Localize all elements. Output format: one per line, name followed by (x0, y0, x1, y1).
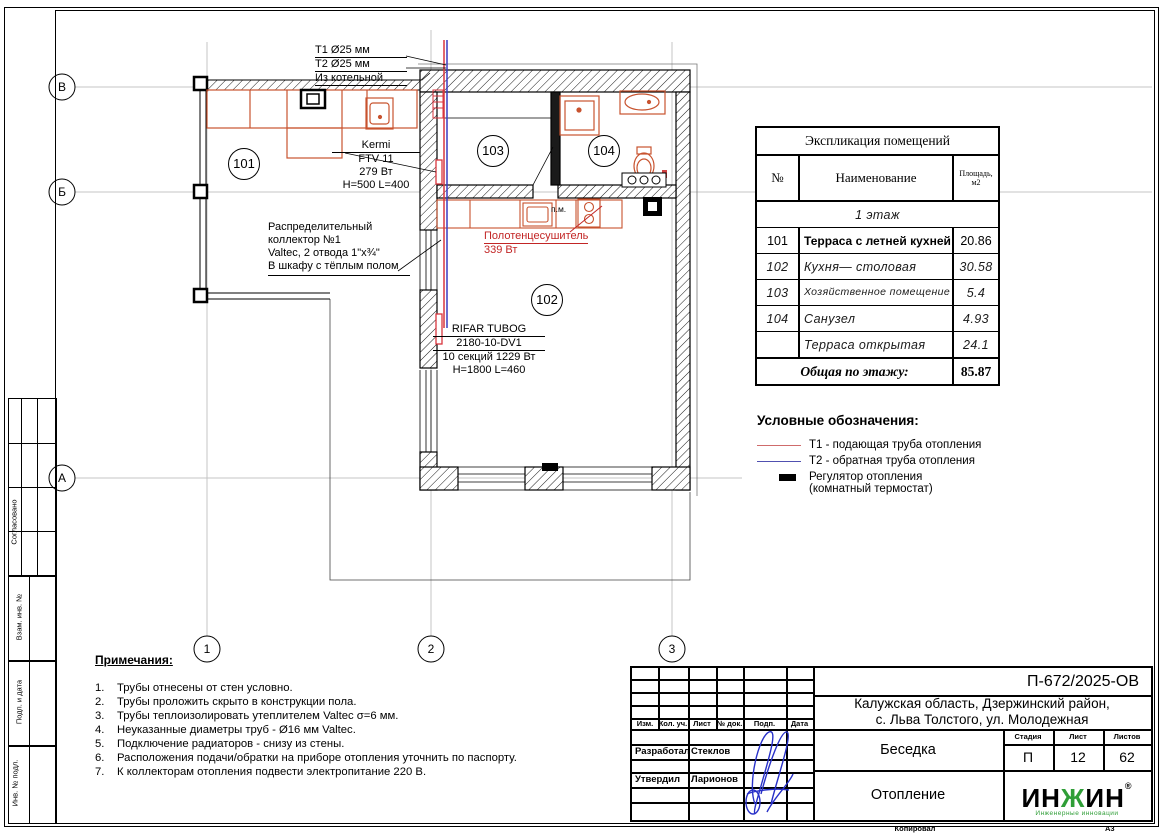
sheets-label: Листов (1103, 729, 1151, 744)
room-101-tag: 101 (228, 148, 260, 180)
return-pipe-label: Т2 Ø25 мм (315, 58, 407, 72)
towel-name: Полотенцесушитель (484, 230, 588, 244)
supply-line-swatch (757, 445, 801, 446)
frame-label-agreed: Согласовано (8, 470, 22, 575)
floor-row: 1 этаж (757, 200, 998, 227)
pipe-labels: Т1 Ø25 мм Т2 Ø25 мм Из котельной (315, 44, 407, 86)
copied-label: Копировал (870, 824, 960, 833)
axis-row-a: А (49, 465, 75, 491)
axis-col-3: 3 (659, 636, 685, 662)
rifar-name: RIFAR TUBOG (433, 323, 545, 337)
developed-label: Разработал (633, 744, 688, 759)
collector-l3: Valtec, 2 отвода 1"х¾" (268, 247, 410, 260)
table-row: 101 Терраса с летней кухней 20.86 (757, 227, 998, 253)
col-no: № (757, 156, 800, 200)
kermi-model: FTV 11 (332, 153, 420, 166)
legend-title: Условные обозначения: (757, 413, 981, 428)
regulator-swatch (779, 474, 796, 481)
collector-l2: коллектор №1 (268, 234, 410, 247)
sheet-value: 12 (1053, 744, 1103, 770)
col-list: Лист (688, 718, 716, 729)
kermi-size: H=500 L=400 (332, 179, 420, 192)
rifar-sections: 10 секций 1229 Вт (433, 351, 545, 364)
frame-label-podp: Подп. и дата (13, 660, 27, 745)
object-name: Беседка (813, 729, 1003, 770)
legend: Условные обозначения: Т1 - подающая труб… (757, 413, 981, 495)
col-name: Наименование (800, 156, 954, 200)
room-102-tag: 102 (531, 284, 563, 316)
table-row: Терраса открытая 24.1 (757, 331, 998, 357)
washing-machine-label: п.м. (551, 204, 566, 214)
sheets-value: 62 (1103, 744, 1151, 770)
collector-l1: Распределительный (268, 221, 410, 234)
rifar-radiator-label: RIFAR TUBOG 2180-10-DV1 10 секций 1229 В… (433, 323, 545, 377)
note-item: 2.Трубы проложить скрыто в конструкции п… (95, 696, 517, 708)
notes-title: Примечания: (95, 653, 517, 667)
note-item: 3.Трубы теплоизолировать утеплителем Val… (95, 710, 517, 722)
kermi-name: Kermi (332, 139, 420, 153)
col-izm: Изм. (632, 718, 658, 729)
rifar-model: 2180-10-DV1 (433, 337, 545, 351)
towel-dryer-label: Полотенцесушитель 339 Вт (484, 230, 588, 257)
supply-pipe-label: Т1 Ø25 мм (315, 44, 407, 58)
note-item: 1.Трубы отнесены от стен условно. (95, 682, 517, 694)
floor-label: 1 этаж (757, 202, 998, 227)
sheet-label: Лист (1053, 729, 1103, 744)
logo-tree-glyph: Ж (1061, 783, 1086, 813)
stage-value: П (1003, 744, 1053, 770)
approved-label: Утвердил (633, 772, 688, 787)
collector-label: Распределительный коллектор №1 Valtec, 2… (268, 221, 410, 276)
col-area: Площадь, м2 (954, 156, 998, 200)
frame-label-vzam: Взам. инв. № (13, 575, 27, 660)
developed-name: Стеклов (689, 744, 743, 759)
logo-tagline: Инженерные инновации (1035, 810, 1118, 817)
section-name: Отопление (813, 770, 1003, 820)
project-address: Калужская область, Дзержинский район, с.… (813, 695, 1151, 729)
note-item: 4.Неуказанные диаметры труб - Ø16 мм Val… (95, 724, 517, 736)
notes: Примечания: 1.Трубы отнесены от стен усл… (95, 653, 517, 778)
legend-item-t2: Т2 - обратная труба отопления (757, 455, 981, 467)
drawing-sheet: Согласовано Взам. инв. № Подп. и дата Ин… (0, 0, 1166, 833)
note-item: 7.К коллекторам отопления подвести элект… (95, 766, 517, 778)
note-item: 5.Подключение радиаторов - снизу из стен… (95, 738, 517, 750)
kermi-power: 279 Вт (332, 166, 420, 179)
legend-item-regulator: Регулятор отопления (комнатный термостат… (757, 471, 981, 495)
rifar-size: H=1800 L=460 (433, 364, 545, 377)
signature (737, 724, 807, 819)
frame-label-inv: Инв. № подл. (9, 741, 23, 826)
format-label: А3 (1105, 824, 1115, 833)
towel-power: 339 Вт (484, 244, 588, 257)
doc-number: П-672/2025-ОВ (813, 668, 1151, 695)
table-row: 103 Хозяйственное помещение 5.4 (757, 279, 998, 305)
explication-title: Экспликация помещений (757, 128, 998, 154)
room-103-tag: 103 (477, 135, 509, 167)
stage-label: Стадия (1003, 729, 1053, 744)
table-row: 102 Кухня— столовая 30.58 (757, 253, 998, 279)
col-kol: Кол. уч. (658, 718, 688, 729)
total-row: Общая по этажу: 85.87 (757, 357, 998, 384)
axis-row-b: Б (49, 179, 75, 205)
legend-item-t1: Т1 - подающая труба отопления (757, 439, 981, 451)
approved-name: Ларионов (689, 772, 743, 787)
total-value: 85.87 (954, 359, 998, 384)
return-line-swatch (757, 461, 801, 462)
explication-title-row: Экспликация помещений (757, 128, 998, 154)
company-logo: ИНЖИН® Инженерные инновации (1003, 770, 1151, 820)
explication-table: Экспликация помещений № Наименование Пло… (755, 126, 1000, 386)
from-boiler-label: Из котельной (315, 72, 407, 86)
explication-header-row: № Наименование Площадь, м2 (757, 154, 998, 200)
room-104-tag: 104 (588, 135, 620, 167)
note-item: 6.Расположения подачи/обратки на приборе… (95, 752, 517, 764)
kermi-radiator-label: Kermi FTV 11 279 Вт H=500 L=400 (332, 139, 420, 192)
total-label: Общая по этажу: (757, 359, 954, 384)
axis-row-v: В (49, 74, 75, 100)
logo-text: ИНЖИН® (1021, 774, 1132, 810)
title-block: Изм. Кол. уч. Лист № док. Подп. Дата Раз… (630, 666, 1153, 822)
collector-l4: В шкафу с тёплым полом (268, 260, 410, 273)
table-row: 104 Санузел 4.93 (757, 305, 998, 331)
